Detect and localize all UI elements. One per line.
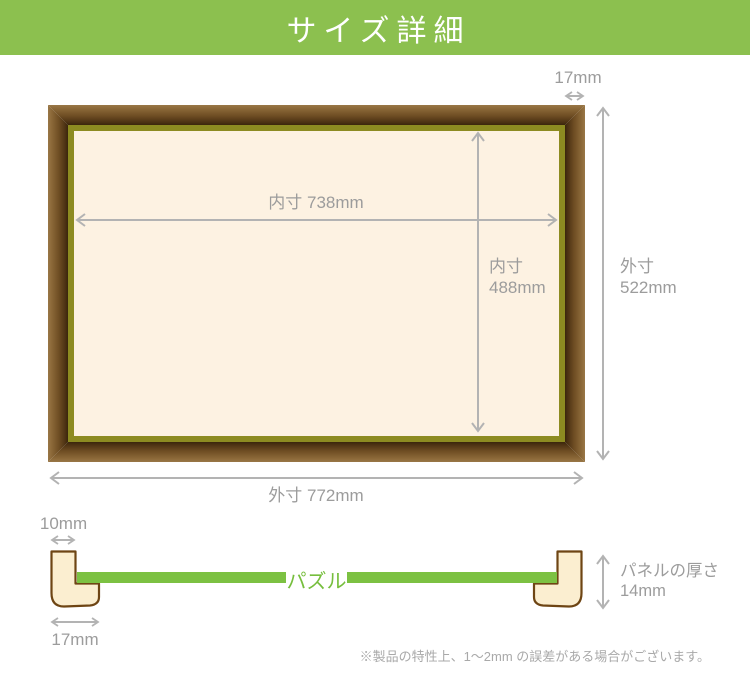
- outer-height-label: 外寸 522mm: [620, 256, 677, 298]
- outer-height-caption: 外寸: [620, 256, 677, 277]
- puzzle-label: パズル: [286, 565, 347, 594]
- puzzle-panel-bar-right: [347, 572, 557, 583]
- frame-left-molding: [48, 105, 68, 462]
- frame-bottom-molding: [48, 442, 585, 462]
- inner-height-label: 内寸 488mm: [489, 256, 546, 298]
- outer-height-value: 522mm: [620, 277, 677, 298]
- base-width-label: 17mm: [47, 629, 103, 650]
- lip-width-label: 10mm: [36, 513, 91, 534]
- size-detail-diagram: サイズ詳細: [0, 0, 750, 680]
- panel-thickness-label: パネルの厚さ 14mm: [620, 561, 719, 601]
- frame-right-molding: [565, 105, 585, 462]
- frame-top-molding: [48, 105, 585, 125]
- panel-thickness-value: 14mm: [620, 581, 719, 601]
- inner-height-value: 488mm: [489, 277, 546, 298]
- puzzle-panel-bar-left: [77, 572, 286, 583]
- tolerance-note: ※製品の特性上、1～2mm の誤差がある場合がございます。: [360, 646, 710, 665]
- inner-width-label: 内寸 738mm: [196, 192, 436, 213]
- panel-thickness-caption: パネルの厚さ: [620, 561, 719, 581]
- frame-border-width-label: 17mm: [550, 67, 606, 88]
- frame-mat-area: [74, 131, 559, 436]
- inner-height-caption: 内寸: [489, 256, 546, 277]
- outer-width-label: 外寸 772mm: [196, 485, 436, 506]
